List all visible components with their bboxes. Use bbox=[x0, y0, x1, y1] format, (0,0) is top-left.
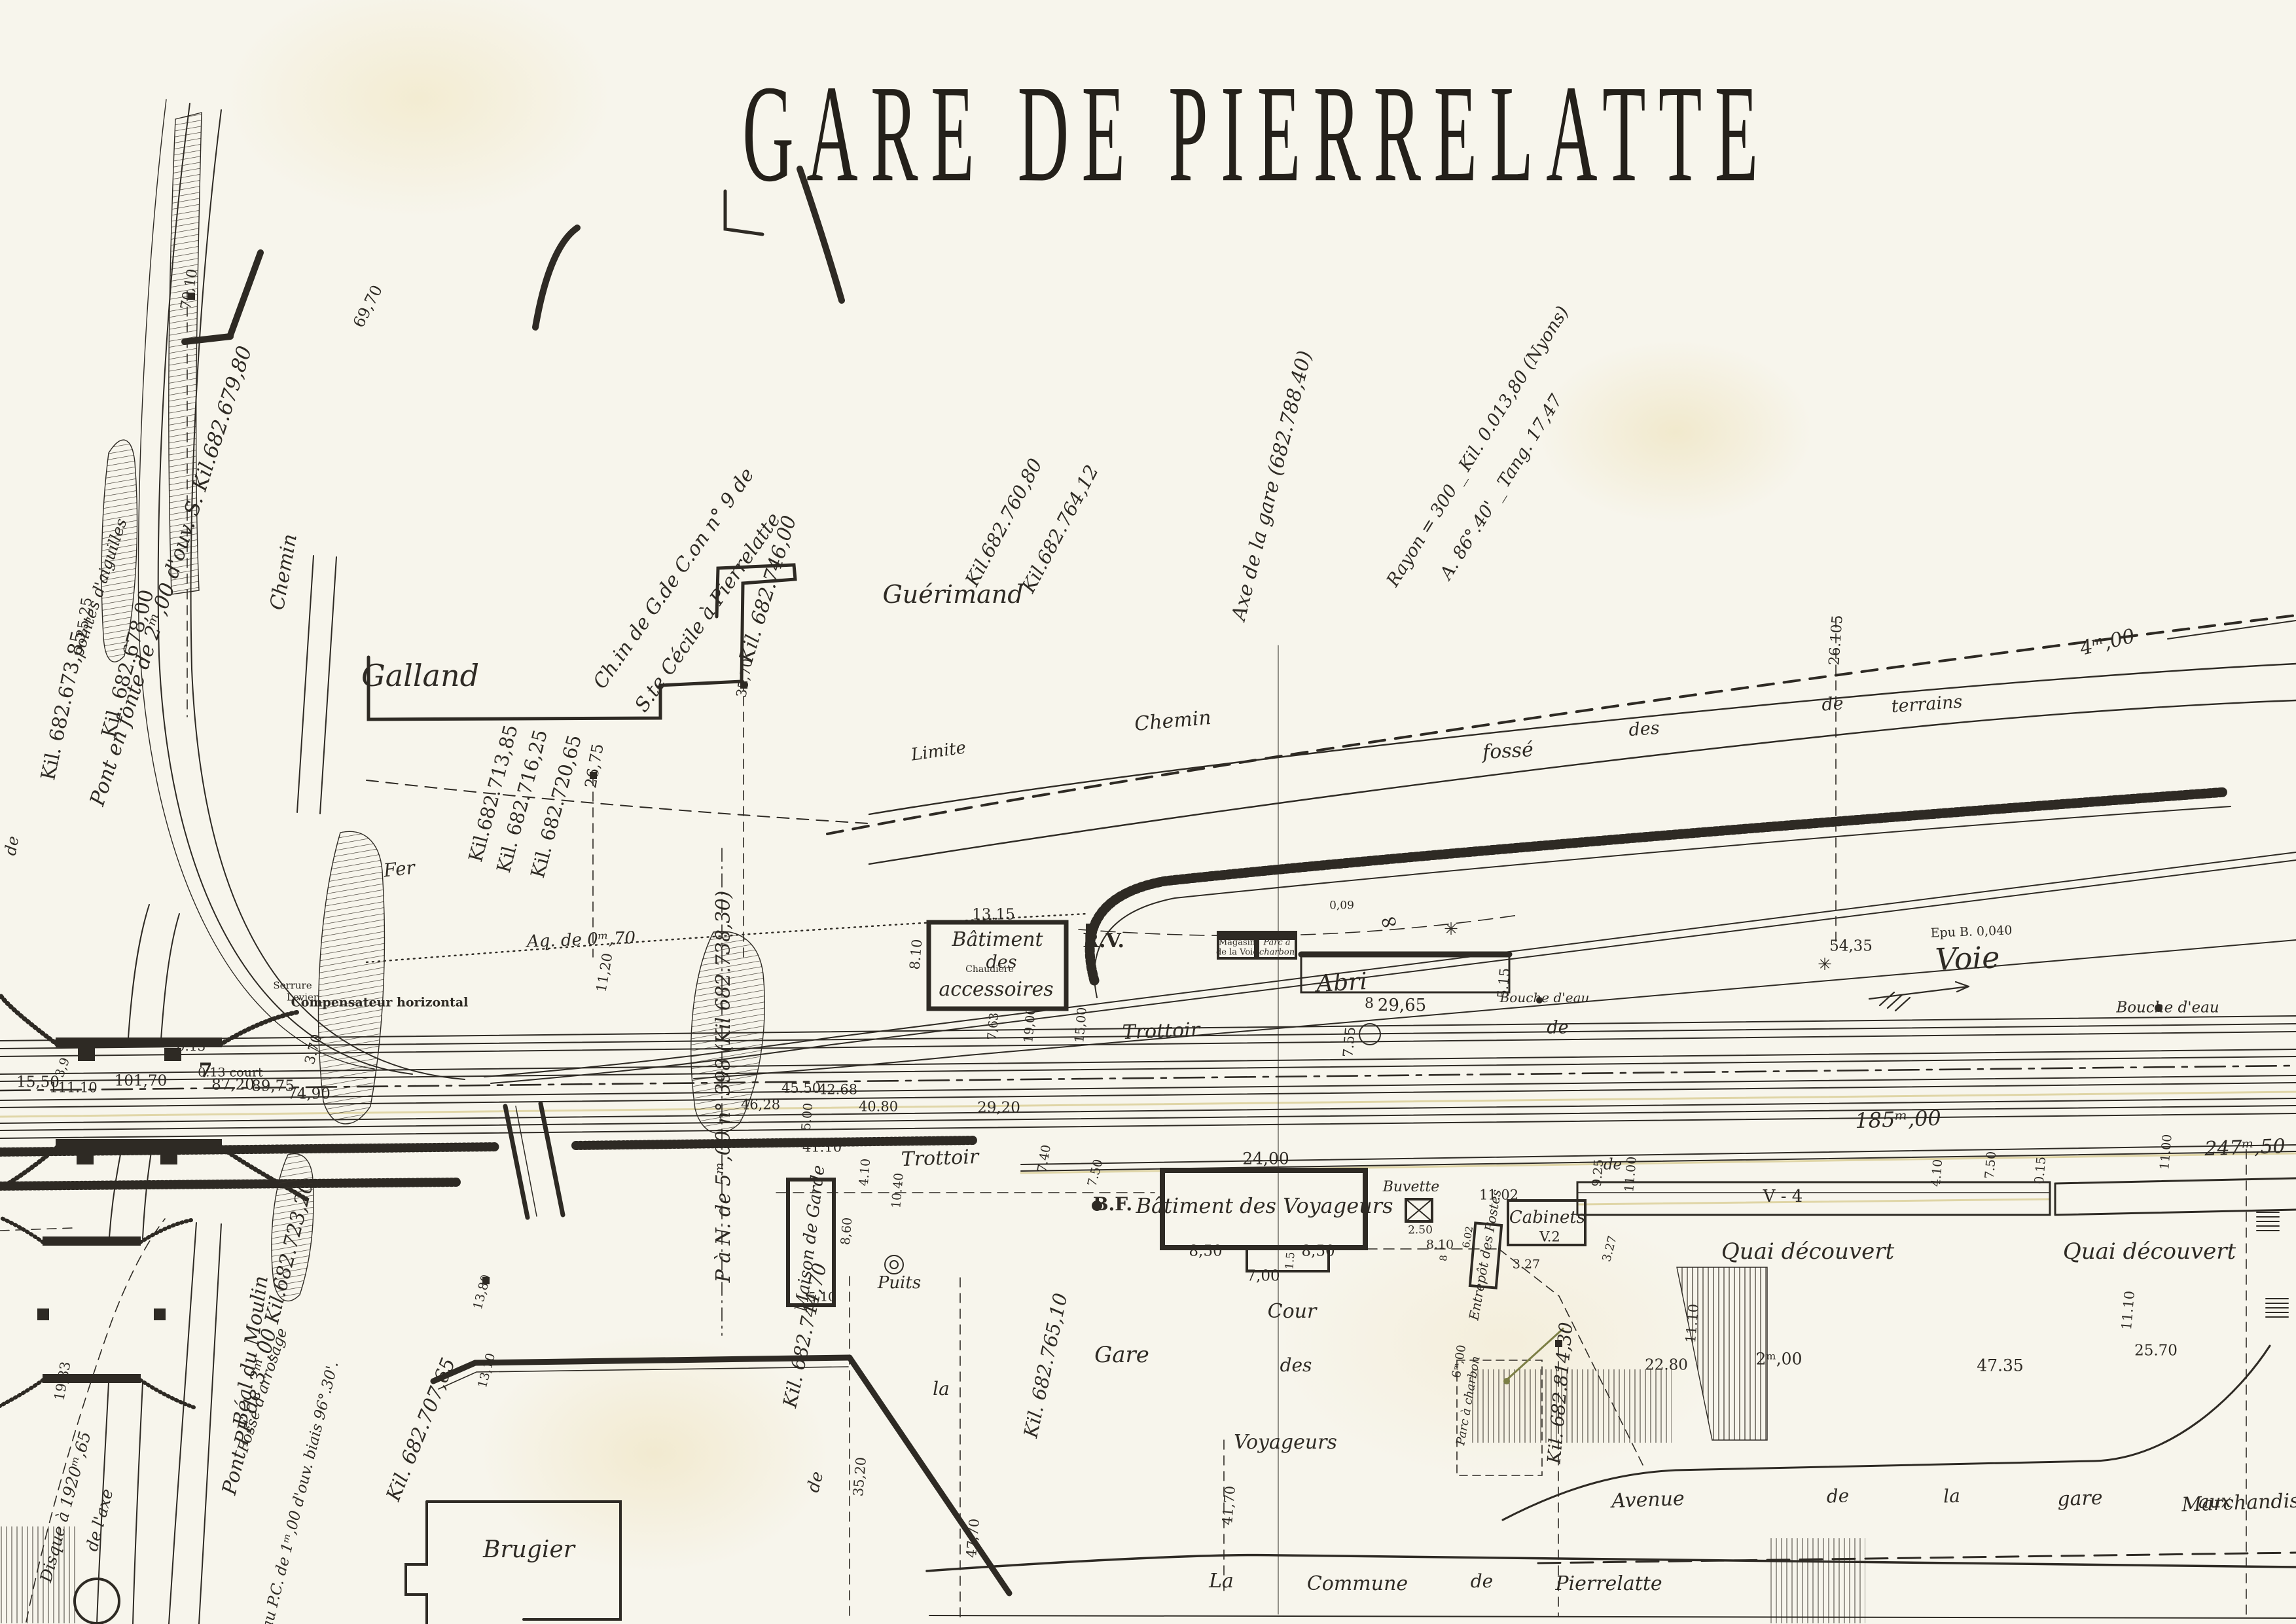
label-v-2: V.2 bbox=[1539, 1231, 1560, 1244]
label-19-00: 19,00 bbox=[1022, 1007, 1038, 1043]
label-de: de bbox=[804, 1470, 826, 1494]
label-24-00: 24,00 bbox=[1242, 1151, 1289, 1167]
label-4-10: 4.10 bbox=[858, 1158, 873, 1187]
label-42-68: 42.68 bbox=[818, 1083, 857, 1097]
label-brugier: Brugier bbox=[483, 1538, 575, 1562]
label-serrure: Serrure bbox=[273, 981, 312, 991]
label-41-10: 41.10 bbox=[802, 1141, 842, 1155]
label-pierrelatte: Pierrelatte bbox=[1555, 1574, 1662, 1594]
label-magasin: Magasin bbox=[1219, 939, 1255, 947]
label-cour: Cour bbox=[1268, 1302, 1317, 1322]
label-7-50: 7.50 bbox=[1984, 1151, 1999, 1180]
label-b-f: B.F. bbox=[1093, 1195, 1132, 1214]
label-avenue: Avenue bbox=[1611, 1489, 1685, 1511]
label-15-00: 15,00 bbox=[1073, 1007, 1089, 1043]
label-11-10: 11.10 bbox=[2120, 1290, 2137, 1331]
label-29-20: 29,20 bbox=[977, 1101, 1020, 1116]
label-47-70: 47,70 bbox=[965, 1518, 982, 1559]
label-b-timent-des-voyageurs: Bâtiment des Voyageurs bbox=[1136, 1195, 1393, 1216]
label-la: La bbox=[1209, 1572, 1234, 1591]
label-2-50: 2.50 bbox=[1408, 1225, 1433, 1236]
label-11-00: 11.00 bbox=[1623, 1156, 1639, 1193]
label-7-00: 7,00 bbox=[1246, 1269, 1280, 1284]
label-terrains: terrains bbox=[1891, 693, 1963, 716]
label-5-00: 5.00 bbox=[800, 1102, 816, 1131]
label-foss: fossé bbox=[1482, 740, 1534, 763]
label-parc: Parc à bbox=[1263, 939, 1290, 947]
station-plan: GARE DE PIERRELATTE Kil. 682.673,85point… bbox=[0, 0, 2296, 1624]
label-7-55: 7.55 bbox=[1342, 1026, 1358, 1058]
label-46-28: 46,28 bbox=[741, 1098, 780, 1112]
label-de: de bbox=[1547, 1019, 1568, 1037]
label-de: de bbox=[1821, 695, 1844, 713]
label-accessoires: accessoires bbox=[939, 980, 1053, 1000]
label-8: 8 bbox=[1365, 997, 1374, 1011]
label-puits: Puits bbox=[878, 1274, 921, 1291]
label-45-50: 45.50 bbox=[781, 1082, 821, 1096]
label-0-15: 0.15 bbox=[2034, 1156, 2049, 1185]
label-des: des bbox=[1280, 1356, 1312, 1375]
label-0-09: 0,09 bbox=[1329, 901, 1354, 912]
label-111-10: 111.10 bbox=[49, 1081, 97, 1095]
label-v-4: V - 4 bbox=[1763, 1188, 1803, 1205]
label-247-50: 247ᵐ,50 bbox=[2204, 1137, 2286, 1159]
label-voie: Voie bbox=[1935, 942, 2000, 974]
label-charbon: charbon bbox=[1259, 948, 1295, 957]
label-commune: Commune bbox=[1307, 1574, 1408, 1594]
chemin-road bbox=[367, 615, 2296, 864]
label-epu-b-0-040: Epu B. 0,040 bbox=[1930, 924, 2012, 939]
label-4-10: 4.10 bbox=[1930, 1159, 1945, 1187]
label-5-15: 5.15 bbox=[1496, 967, 1513, 999]
label-41-70: 41,70 bbox=[1221, 1485, 1238, 1526]
label-de: de bbox=[1471, 1572, 1494, 1591]
label-bouche-d-eau: Bouche d'eau bbox=[2116, 1001, 2219, 1016]
label-11-02: 11.02 bbox=[1479, 1189, 1518, 1202]
page-title: GARE DE PIERRELATTE bbox=[742, 54, 1770, 215]
label-3-27: 3.27 bbox=[1513, 1259, 1540, 1271]
puits-well-icon bbox=[885, 1255, 903, 1274]
label-8-50: 8,50 bbox=[1301, 1244, 1335, 1259]
label-29-65: 29,65 bbox=[1378, 997, 1426, 1014]
label-quai-d-couvert: Quai découvert bbox=[1721, 1240, 1894, 1263]
label-185-00: 185ᵐ,00 bbox=[1855, 1108, 1942, 1132]
label-galland: Galland bbox=[361, 660, 479, 691]
quai-v4-outline bbox=[1577, 1182, 2050, 1215]
plan-linework bbox=[0, 0, 2296, 1624]
label-b-timent: Bâtiment bbox=[952, 930, 1043, 950]
label-35-20: 35,20 bbox=[852, 1456, 869, 1497]
label-47-35: 47.35 bbox=[1977, 1358, 2024, 1374]
label-87-20: 87,20 bbox=[211, 1078, 255, 1093]
label-8: 8 bbox=[1439, 1255, 1449, 1262]
label-101-70: 101,70 bbox=[115, 1074, 167, 1089]
label-gare: Gare bbox=[1094, 1344, 1149, 1366]
label-2-00: 2ᵐ,00 bbox=[1756, 1351, 1803, 1367]
label-8-10: 8.10 bbox=[908, 939, 925, 970]
label-chaudi-re: Chaudière bbox=[965, 965, 1014, 974]
label-mark: ✳ bbox=[1444, 921, 1458, 938]
label-mark: ✳ bbox=[1818, 956, 1832, 973]
label-de: de bbox=[1604, 1158, 1622, 1173]
label-54-35: 54,35 bbox=[1829, 939, 1873, 954]
label-10-40: 10.40 bbox=[890, 1172, 906, 1209]
label-buvette: Buvette bbox=[1383, 1180, 1440, 1195]
label-aq-de-0-70: Aq. de 0ᵐ,70 bbox=[527, 929, 636, 950]
label-gu-rimand: Guérimand bbox=[882, 582, 1023, 607]
label-la: la bbox=[1943, 1487, 1961, 1506]
label-0-13: 0.13 bbox=[177, 1039, 206, 1053]
label-quai-d-couvert: Quai découvert bbox=[2063, 1240, 2236, 1263]
label-8-50: 8,50 bbox=[1189, 1244, 1222, 1259]
label-8-10: 8.10 bbox=[1426, 1239, 1454, 1252]
label-8-60: 8,60 bbox=[840, 1217, 855, 1246]
flow-arrow-icon bbox=[1869, 982, 1969, 1011]
label-fer: Fer bbox=[383, 859, 416, 880]
label-la: la bbox=[933, 1380, 950, 1398]
stairs-icon bbox=[2257, 1212, 2288, 1317]
label-11-10: 11.10 bbox=[1684, 1303, 1701, 1344]
label-p-n-de-5-00-n-398-kil-682-738-30: P à N. de 5ᵐ,00 n° 398 (Kil 682.738,30) bbox=[714, 891, 734, 1283]
label-7-63: 7,63 bbox=[986, 1012, 1001, 1041]
label-r-v: R.V. bbox=[1083, 931, 1124, 951]
label-de: de bbox=[3, 835, 22, 856]
label-22-80: 22.80 bbox=[1645, 1358, 1688, 1373]
label-1-5: 1.5 bbox=[1284, 1252, 1297, 1270]
label-74-90: 74,90 bbox=[287, 1087, 331, 1102]
label-des: des bbox=[1628, 719, 1660, 739]
label-de: de bbox=[1826, 1487, 1849, 1506]
label-de-la-voie: de la Voie bbox=[1216, 948, 1258, 957]
label-26-105: 26.105 bbox=[1827, 615, 1845, 666]
label-cabinets: Cabinets bbox=[1509, 1209, 1585, 1226]
label-marchandises: Marchandises bbox=[2181, 1490, 2296, 1515]
label-abri: Abri bbox=[1316, 970, 1368, 996]
label-voyageurs: Voyageurs bbox=[1234, 1433, 1337, 1453]
label-11-00: 11.00 bbox=[2159, 1134, 2174, 1170]
label-25-70: 25.70 bbox=[2134, 1344, 2178, 1359]
label-13-15: 13.15 bbox=[972, 908, 1015, 923]
label-trottoir: Trottoir bbox=[1122, 1020, 1200, 1043]
label-gare: gare bbox=[2057, 1489, 2103, 1509]
label-compensateur-horizontal: Compensateur horizontal bbox=[291, 997, 469, 1009]
label-bouche-d-eau: Bouche d'eau bbox=[1500, 991, 1590, 1004]
fosse-wall bbox=[1090, 792, 2231, 998]
label-trottoir: Trottoir bbox=[901, 1147, 979, 1170]
label-40-80: 40.80 bbox=[859, 1100, 898, 1114]
